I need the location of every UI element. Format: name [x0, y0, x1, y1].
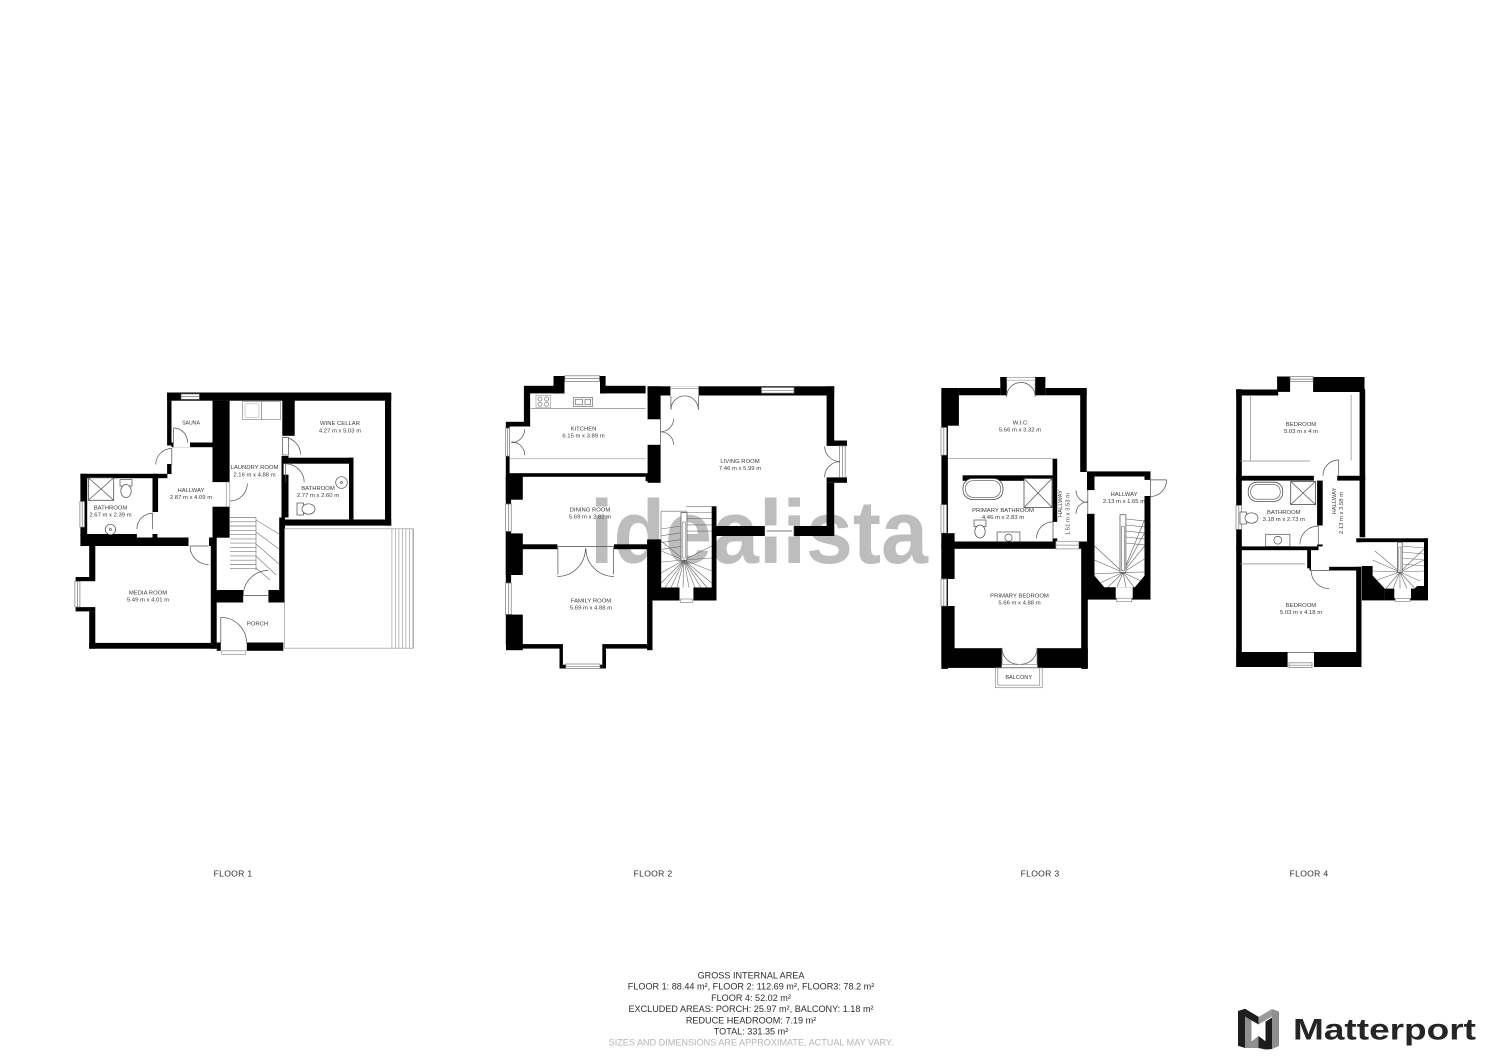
svg-text:BEDROOM: BEDROOM — [1286, 603, 1317, 609]
svg-text:LAUNDRY ROOM: LAUNDRY ROOM — [231, 465, 279, 471]
svg-text:6.15 m x 3.89 m: 6.15 m x 3.89 m — [562, 434, 604, 440]
svg-text:W.I.C: W.I.C — [1013, 421, 1028, 427]
svg-text:HALLWAY: HALLWAY — [177, 488, 204, 494]
svg-text:SIZES AND DIMENSIONS ARE APPRO: SIZES AND DIMENSIONS ARE APPROXIMATE, AC… — [609, 1038, 894, 1048]
svg-text:FAMILY ROOM: FAMILY ROOM — [571, 599, 611, 605]
svg-text:KITCHEN: KITCHEN — [571, 427, 597, 433]
svg-text:DINING ROOM: DINING ROOM — [570, 508, 611, 514]
svg-text:BATHROOM: BATHROOM — [94, 506, 128, 512]
svg-text:5.69 m x 4.88 m: 5.69 m x 4.88 m — [570, 606, 612, 612]
svg-text:FLOOR 4: FLOOR 4 — [1290, 869, 1329, 879]
svg-text:7.46 m x 5.99 m: 7.46 m x 5.99 m — [719, 466, 761, 472]
svg-text:FLOOR 1: FLOOR 1 — [214, 869, 253, 879]
svg-text:5.69 m x 2.82 m: 5.69 m x 2.82 m — [569, 515, 611, 521]
svg-text:2.13 m x 1.65 m: 2.13 m x 1.65 m — [1103, 499, 1145, 505]
svg-text:5.03 m x 4.18 m: 5.03 m x 4.18 m — [1280, 610, 1322, 616]
svg-text:3.18 m x 2.73 m: 3.18 m x 2.73 m — [1263, 517, 1305, 523]
svg-text:4.27 m x 5.03 m: 4.27 m x 5.03 m — [319, 429, 361, 435]
svg-text:Matterport: Matterport — [1293, 1014, 1476, 1047]
svg-text:SAUNA: SAUNA — [182, 421, 200, 427]
svg-text:BATHROOM: BATHROOM — [1267, 510, 1301, 516]
svg-text:FLOOR 3: FLOOR 3 — [1021, 869, 1060, 879]
svg-text:TOTAL: 331.35 m²: TOTAL: 331.35 m² — [714, 1027, 788, 1037]
svg-text:1.51 m x 3.53 m: 1.51 m x 3.53 m — [1066, 493, 1072, 535]
svg-text:REDUCE HEADROOM: 7.19 m²: REDUCE HEADROOM: 7.19 m² — [686, 1015, 816, 1025]
svg-text:5.66 m x 3.32 m: 5.66 m x 3.32 m — [999, 428, 1041, 434]
svg-text:WINE CELLAR: WINE CELLAR — [320, 421, 360, 427]
svg-text:BATHROOM: BATHROOM — [301, 486, 335, 492]
svg-text:PRIMARY BEDROOM: PRIMARY BEDROOM — [990, 594, 1049, 600]
svg-text:FLOOR 2: FLOOR 2 — [634, 869, 673, 879]
svg-text:BALCONY: BALCONY — [1005, 675, 1032, 681]
svg-text:2.87 m x 4.09 m: 2.87 m x 4.09 m — [170, 495, 212, 501]
svg-text:HALLWAY: HALLWAY — [1332, 487, 1338, 514]
svg-text:EXCLUDED AREAS: PORCH: 25.97 m: EXCLUDED AREAS: PORCH: 25.97 m², BALCONY… — [628, 1004, 873, 1014]
svg-text:FLOOR 1: 88.44 m², FLOOR 2: 11: FLOOR 1: 88.44 m², FLOOR 2: 112.69 m², F… — [628, 982, 874, 992]
svg-text:HALLWAY: HALLWAY — [1110, 492, 1137, 498]
svg-text:PORCH: PORCH — [247, 622, 268, 628]
svg-text:LIVING ROOM: LIVING ROOM — [720, 459, 759, 465]
svg-text:2.67 m x 2.39 m: 2.67 m x 2.39 m — [89, 513, 131, 519]
svg-text:5.49 m x 4.01 m: 5.49 m x 4.01 m — [127, 598, 169, 604]
svg-text:5.03 m x 4 m: 5.03 m x 4 m — [1284, 429, 1318, 435]
svg-text:2.13 m x 3.58 m: 2.13 m x 3.58 m — [1339, 492, 1345, 534]
svg-text:5.66 m x 4.88 m: 5.66 m x 4.88 m — [998, 601, 1040, 607]
svg-text:PRIMARY BATHROOM: PRIMARY BATHROOM — [972, 508, 1034, 514]
svg-text:4.46 m x 2.83 m: 4.46 m x 2.83 m — [982, 515, 1024, 521]
svg-text:GROSS INTERNAL AREA: GROSS INTERNAL AREA — [698, 971, 806, 981]
svg-text:2.16 m x 4.88 m: 2.16 m x 4.88 m — [233, 473, 275, 479]
svg-text:BEDROOM: BEDROOM — [1286, 422, 1317, 428]
svg-text:FLOOR 4: 52.02 m²: FLOOR 4: 52.02 m² — [711, 993, 791, 1003]
svg-text:2.77 m x 2.60 m: 2.77 m x 2.60 m — [297, 493, 339, 499]
svg-text:MEDIA ROOM: MEDIA ROOM — [129, 591, 167, 597]
svg-text:HALLWAY: HALLWAY — [1058, 490, 1064, 517]
